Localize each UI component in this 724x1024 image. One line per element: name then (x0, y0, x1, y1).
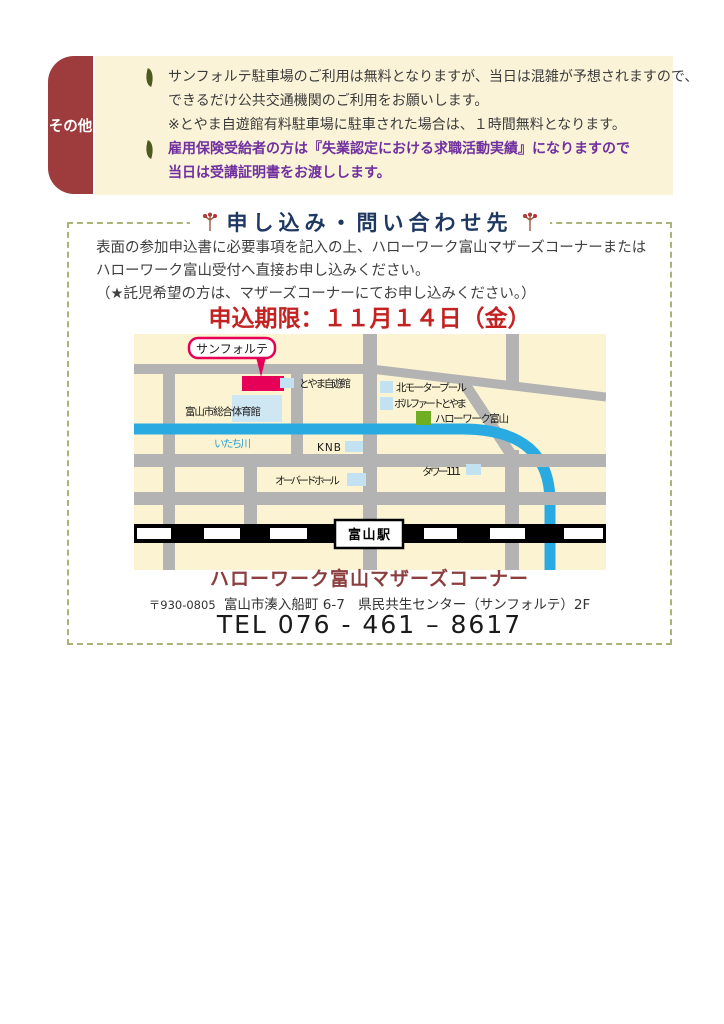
leaf-bullet-icon (143, 140, 157, 159)
bolfart-marker (380, 397, 393, 410)
hellowork-marker (416, 411, 431, 425)
contact-name: ハローワーク富山マザーズコーナー (69, 564, 670, 591)
note-line: 当日は受講証明書をお渡しします。 (168, 161, 630, 185)
map-road (134, 364, 375, 374)
access-map: 富山駅 サンフォルテ とやま自遊館 富山市総合体育館 北モータープール (134, 334, 606, 570)
kita-pool-label: 北モータープール (396, 382, 467, 394)
knb-marker (345, 441, 363, 452)
note-line: サンフォルテ駐車場のご利用は無料となりますが、当日は混雑が予想されますので、 (168, 65, 698, 89)
flyer-page: その他 サンフォルテ駐車場のご利用は無料となりますが、当日は混雑が予想されますの… (0, 0, 724, 1024)
note-text-parking: サンフォルテ駐車場のご利用は無料となりますが、当日は混雑が予想されますので、 で… (168, 65, 698, 137)
access-map-svg: 富山駅 サンフォルテ とやま自遊館 富山市総合体育館 北モータープール (134, 334, 606, 570)
map-road (506, 334, 519, 386)
map-road (134, 454, 606, 467)
instruction-line: 表面の参加申込書に必要事項を記入の上、ハローワーク富山マザーズコーナーまたは (96, 237, 646, 260)
bolfart-label: ボルファートとやま (394, 398, 467, 410)
note-item-parking: サンフォルテ駐車場のご利用は無料となりますが、当日は混雑が予想されますので、 で… (145, 65, 698, 137)
railway-dash (270, 528, 307, 539)
railway-dash (137, 528, 171, 539)
sanforte-label: サンフォルテ (196, 342, 268, 356)
flower-icon (202, 212, 218, 232)
application-instructions: 表面の参加申込書に必要事項を記入の上、ハローワーク富山マザーズコーナーまたは ハ… (96, 237, 646, 306)
gym-label: 富山市総合体育館 (185, 405, 261, 418)
map-road (505, 450, 519, 570)
note-line: できるだけ公共交通機関のご利用をお願いします。 (168, 89, 698, 113)
railway-dash (424, 528, 457, 539)
contact-phone: TEL 076 - 461 – 8617 (69, 610, 670, 639)
note-line: 雇用保険受給者の方は『失業認定における求職活動実績』になりますので (168, 137, 630, 161)
hellowork-label: ハローワーク富山 (435, 412, 509, 425)
other-section-tab: その他 (48, 56, 93, 194)
inquiry-title: 申し込み・問い合わせ先 (69, 207, 670, 237)
railway-dash (490, 528, 525, 539)
inquiry-title-text: 申し込み・問い合わせ先 (227, 207, 513, 237)
aubade-hall-marker (347, 473, 366, 486)
jiyukan-label: とやま自遊館 (299, 377, 351, 390)
station-label: 富山駅 (348, 527, 391, 543)
kita-pool-marker (380, 381, 393, 393)
jiyukan-marker (280, 378, 294, 388)
tower111-marker (466, 464, 481, 475)
note-text-insurance: 雇用保険受給者の方は『失業認定における求職活動実績』になりますので 当日は受講証… (168, 137, 630, 185)
other-notes-box: サンフォルテ駐車場のご利用は無料となりますが、当日は混雑が予想されますので、 で… (95, 56, 673, 195)
railway-dash (204, 528, 240, 539)
flower-icon (522, 212, 538, 232)
aubade-hall-label: オーバードホール (275, 475, 340, 487)
instruction-line: ハローワーク富山受付へ直接お申し込みください。 (96, 260, 646, 283)
application-deadline: 申込期限：１１月１４日（金） (203, 299, 537, 336)
note-line: ※とやま自遊館有料駐車場に駐車された場合は、１時間無料となります。 (168, 113, 698, 137)
deadline-row: 申込期限：１１月１４日（金） (69, 299, 670, 336)
sanforte-marker (242, 376, 284, 391)
itachi-river-label: いたち川 (214, 438, 251, 450)
knb-label: KNB (317, 442, 341, 454)
map-road (134, 492, 606, 505)
tower111-label: タワー111 (422, 466, 461, 478)
note-item-insurance: 雇用保険受給者の方は『失業認定における求職活動実績』になりますので 当日は受講証… (145, 137, 630, 185)
railway-dash (564, 528, 603, 539)
inquiry-box: 申し込み・問い合わせ先 表面の参加申込書に必要事項を記入の上、ハローワーク富山マ… (67, 222, 672, 645)
leaf-bullet-icon (143, 68, 157, 87)
